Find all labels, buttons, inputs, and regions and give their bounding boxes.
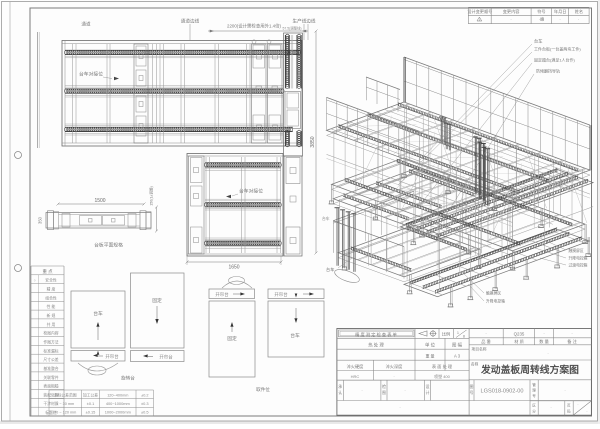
svg-text:触摸屏区: 触摸屏区 [486, 291, 501, 296]
svg-text:设: 设 [426, 384, 430, 389]
svg-text:±0.15: ±0.15 [86, 410, 96, 415]
svg-text:旋转台: 旋转台 [121, 375, 135, 382]
svg-text:固定踏台(满足1人台作): 固定踏台(满足1人台作) [534, 57, 576, 63]
svg-text:计: 计 [426, 390, 430, 395]
svg-text:生产线边线: 生产线边线 [293, 18, 316, 25]
svg-text:台车: 台车 [322, 216, 330, 221]
svg-text:HRC: HRC [351, 374, 360, 379]
svg-text:57.5(调整线): 57.5(调整线) [282, 26, 301, 31]
svg-text:未标公差范围: 未标公差范围 [54, 392, 77, 397]
svg-text:材 质: 材 质 [514, 338, 524, 345]
svg-text:单 位: 单 位 [425, 342, 436, 349]
svg-text:过渡电控箱: 过渡电控箱 [569, 263, 588, 268]
svg-text:性 能: 性 能 [47, 304, 56, 309]
svg-text:·: · [571, 331, 572, 336]
svg-text:工件台板(一台盖两块工件): 工件台板(一台盖两块工件) [534, 46, 581, 52]
svg-text:安全性: 安全性 [45, 278, 57, 283]
svg-text:150(1±调整): 150(1±调整) [149, 186, 154, 206]
svg-text:表面粗糙: 表面粗糙 [43, 384, 58, 389]
svg-text:开帘台: 开帘台 [105, 353, 119, 360]
svg-text:·: · [543, 331, 544, 336]
svg-text:备 注: 备 注 [567, 338, 577, 345]
svg-text:重 点: 重 点 [42, 268, 53, 275]
svg-text:喷塑 400: 喷塑 400 [434, 373, 451, 379]
svg-text:·: · [578, 17, 579, 22]
svg-text:名称: 名称 [471, 362, 479, 367]
svg-text:页: 页 [567, 403, 571, 408]
svg-text:·: · [361, 388, 362, 393]
svg-text:400~1000mm: 400~1000mm [106, 401, 130, 406]
svg-text:认: 认 [338, 390, 342, 395]
svg-text:A 3: A 3 [454, 353, 461, 358]
svg-text:·: · [586, 410, 587, 414]
svg-text:设计变更顺号: 设计变更顺号 [467, 8, 492, 15]
svg-text:台车对接位: 台车对接位 [79, 71, 103, 78]
svg-text:加工公差: 加工公差 [83, 392, 98, 397]
svg-text:通道边线: 通道边线 [181, 18, 200, 25]
svg-text:·: · [577, 403, 578, 407]
svg-text:通道: 通道 [81, 21, 91, 28]
svg-text:淬火硬度: 淬火硬度 [347, 363, 365, 370]
svg-text:年月日: 年月日 [554, 8, 567, 15]
svg-text:理: 理 [532, 388, 536, 393]
svg-text:台车对接位: 台车对接位 [239, 188, 263, 195]
svg-text:图: 图 [382, 391, 386, 395]
svg-text:基准整合: 基准整合 [43, 366, 58, 371]
svg-text:开帘台: 开帘台 [274, 291, 288, 298]
svg-text:·: · [404, 388, 405, 393]
svg-text:3850: 3850 [310, 136, 316, 147]
svg-text:2200(设计需检查用外1.4倍): 2200(设计需检查用外1.4倍) [227, 23, 281, 30]
svg-text:防倾翻挡导轨: 防倾翻挡导轨 [536, 68, 560, 74]
svg-text:8: 8 [463, 335, 465, 339]
svg-text:触摸屏区: 触摸屏区 [569, 248, 584, 253]
svg-text:检图内容: 检图内容 [43, 331, 58, 336]
svg-text:固定: 固定 [152, 297, 162, 304]
svg-text:·: · [564, 388, 565, 393]
svg-text:项目名称: 项目名称 [471, 347, 486, 352]
svg-text:固定: 固定 [227, 335, 237, 342]
svg-text:检: 检 [382, 384, 386, 389]
svg-text:台车: 台车 [290, 332, 300, 339]
svg-text:350: 350 [38, 216, 43, 224]
svg-text:·: · [393, 374, 394, 379]
svg-text:升降电控箱: 升降电控箱 [486, 299, 505, 304]
svg-text:号: 号 [532, 393, 536, 398]
svg-text:±0.1: ±0.1 [87, 401, 95, 406]
svg-text:号: 号 [470, 390, 474, 395]
svg-text:台板平面规格: 台板平面规格 [94, 242, 123, 249]
svg-text:±0.5: ±0.5 [141, 410, 149, 415]
svg-text:组合性: 组合性 [45, 295, 57, 300]
svg-text:图: 图 [470, 385, 474, 389]
svg-text:图 幅: 图 幅 [452, 342, 463, 349]
svg-text:·: · [559, 17, 560, 22]
svg-text:·: · [485, 331, 486, 336]
svg-text:热 处 理: 热 处 理 [368, 342, 384, 349]
svg-text:作图方法: 作图方法 [43, 340, 58, 345]
svg-text:±0.2: ±0.2 [141, 393, 148, 397]
svg-text:变更内容: 变更内容 [503, 8, 520, 15]
svg-text:·编: ·编 [539, 16, 544, 22]
svg-text:取件位: 取件位 [256, 386, 270, 393]
svg-text:○: ○ [34, 279, 36, 283]
svg-text:重 量: 重 量 [425, 352, 434, 358]
svg-text:关联零件: 关联零件 [43, 375, 58, 380]
svg-text:台车: 台车 [326, 266, 334, 273]
svg-text:1650: 1650 [228, 265, 239, 271]
svg-text:30 ~ 120 mm: 30 ~ 120 mm [54, 411, 76, 415]
svg-text:·: · [399, 405, 400, 410]
svg-text:发动盖板周转线方案图: 发动盖板周转线方案图 [481, 363, 579, 376]
svg-text:尺寸公差: 尺寸公差 [43, 357, 58, 362]
svg-text:精 度 测 定 检 查 表 单: 精 度 测 定 检 查 表 单 [355, 331, 397, 338]
svg-text:台车: 台车 [534, 38, 542, 45]
svg-text:数 量: 数 量 [539, 338, 549, 345]
svg-text:Q235: Q235 [514, 331, 525, 336]
svg-text:1 ~ 30 mm: 1 ~ 30 mm [56, 402, 74, 406]
svg-text:淬火深度: 淬火深度 [386, 363, 404, 370]
svg-text:比例: 比例 [442, 331, 450, 338]
svg-text:姓名: 姓名 [575, 8, 583, 15]
svg-text:品 番: 品 番 [481, 338, 491, 345]
svg-text:分: 分 [532, 409, 536, 414]
svg-text:承: 承 [338, 384, 342, 389]
svg-text:1000~2000mm: 1000~2000mm [105, 410, 131, 415]
svg-text:·: · [510, 17, 511, 22]
svg-text:新 规: 新 规 [47, 313, 56, 318]
svg-text:120~400mm: 120~400mm [107, 393, 128, 397]
svg-text:共 用: 共 用 [47, 322, 56, 327]
svg-text:·: · [547, 351, 548, 356]
svg-text:标准漏标: 标准漏标 [43, 348, 58, 353]
svg-text:台车: 台车 [93, 310, 103, 317]
svg-text:精 度: 精 度 [47, 287, 56, 292]
svg-text:开帘台: 开帘台 [159, 353, 173, 360]
svg-text:管: 管 [532, 382, 536, 387]
svg-text:码: 码 [567, 409, 571, 414]
svg-text:表 面 处 理: 表 面 处 理 [432, 363, 453, 370]
svg-text:开帘台: 开帘台 [215, 291, 229, 298]
svg-text:符号: 符号 [537, 8, 545, 15]
svg-text:区: 区 [532, 404, 536, 408]
svg-text:1: 1 [457, 331, 459, 335]
svg-text:±0.3: ±0.3 [141, 401, 149, 406]
svg-text:升降电控箱: 升降电控箱 [569, 256, 588, 261]
svg-text:·: · [550, 405, 551, 410]
svg-text:1500: 1500 [94, 198, 105, 204]
svg-text:LGS018-0902-00: LGS018-0902-00 [481, 389, 524, 395]
